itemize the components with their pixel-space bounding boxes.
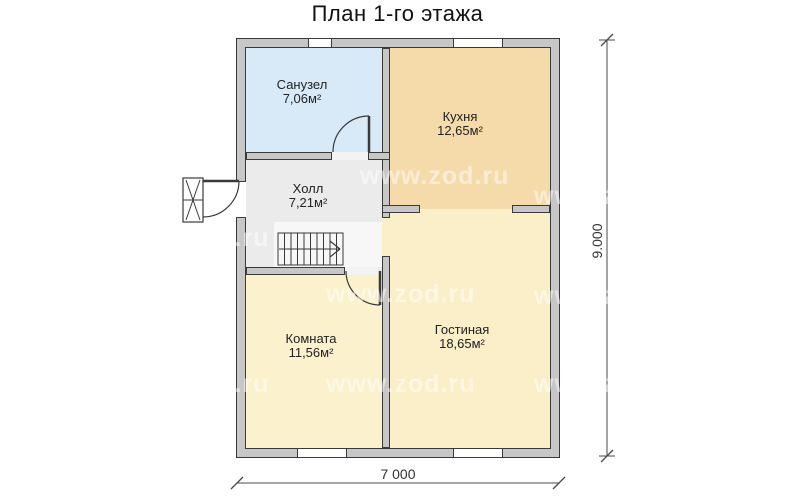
room-name: Кухня [437,110,483,124]
entrance-door-icon [203,181,239,217]
window-bottom-living [453,448,503,458]
wall-hall-komnata [246,267,345,275]
wall-kitchen-living-left [382,205,420,213]
dimension-label-horizontal: 7 000 [368,466,428,482]
passage-hall-living [382,214,390,258]
room-name: Санузел [277,78,328,92]
room-name: Гостиная [435,323,490,337]
room-area: 11,56м² [286,346,337,360]
komnata-door-gap [345,267,378,275]
room-name: Комната [286,332,337,346]
porch-steps [183,178,203,222]
window-bottom-komnata [297,448,347,458]
wall-bathroom-hall-left [246,152,332,160]
wall-komnata-living [382,256,390,448]
room-label-komnata: Комната 11,56м² [286,332,337,360]
bathroom-door-gap [332,152,368,160]
floor-plan-canvas: План 1-го этажа [0,0,795,496]
room-label-living: Гостиная 18,65м² [435,323,490,351]
room-label-bathroom: Санузел 7,06м² [277,78,328,106]
dimension-label-vertical: 9.000 [582,216,612,266]
room-label-kitchen: Кухня 12,65м² [437,110,483,138]
wall-bathroom-kitchen [382,48,390,218]
room-area: 7,21м² [289,196,328,210]
stair-zone [274,222,382,267]
wall-bathroom-hall-right [368,152,390,160]
room-name: Холл [289,182,328,196]
room-area: 12,65м² [437,124,483,138]
page-title: План 1-го этажа [0,1,795,27]
room-label-hall: Холл 7,21м² [289,182,328,210]
window-top-bathroom [308,38,332,48]
room-area: 18,65м² [435,337,490,351]
room-area: 7,06м² [277,92,328,106]
window-top-kitchen [453,38,503,48]
wall-kitchen-living-right [512,205,550,213]
entrance-door-opening [236,181,246,218]
